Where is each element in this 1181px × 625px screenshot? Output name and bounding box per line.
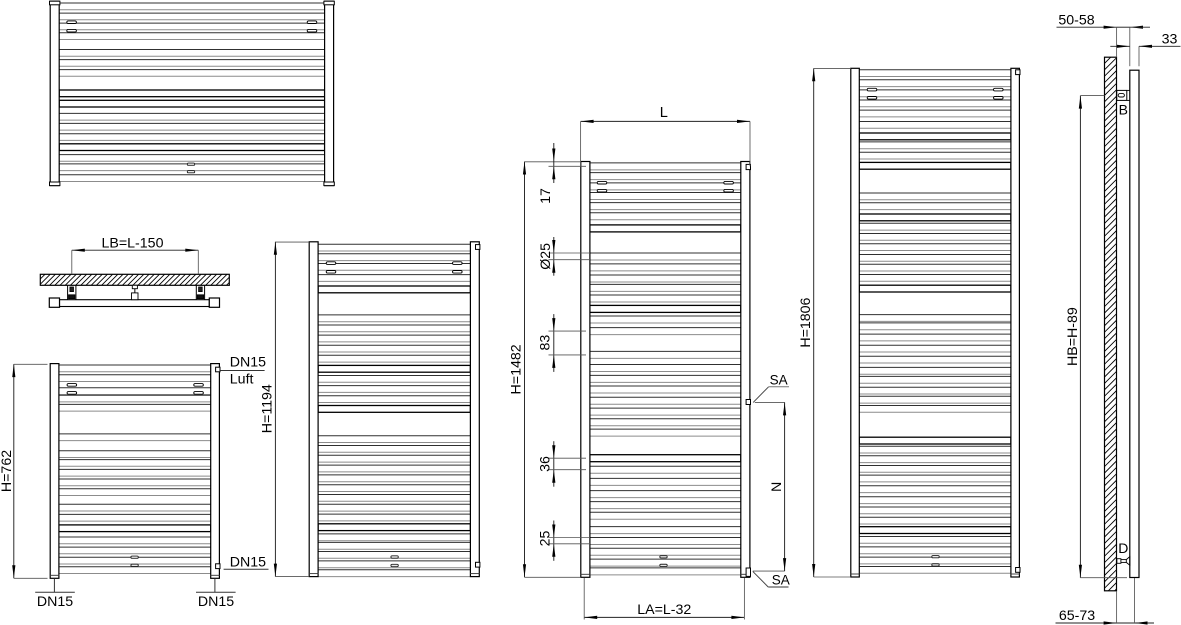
svg-text:65-73: 65-73 xyxy=(1059,608,1095,624)
svg-text:N: N xyxy=(768,482,784,492)
svg-text:H=1194: H=1194 xyxy=(260,384,276,433)
svg-text:B: B xyxy=(1119,101,1128,117)
svg-text:D: D xyxy=(1118,540,1128,556)
svg-text:LB=L-150: LB=L-150 xyxy=(102,236,164,252)
svg-text:83: 83 xyxy=(537,335,553,351)
svg-text:17: 17 xyxy=(538,188,554,204)
svg-text:H=762: H=762 xyxy=(0,450,15,492)
svg-text:H=1806: H=1806 xyxy=(798,297,814,347)
svg-text:50-58: 50-58 xyxy=(1058,13,1094,29)
svg-text:DN15: DN15 xyxy=(198,594,234,610)
svg-text:Luft: Luft xyxy=(230,372,254,388)
svg-text:DN15: DN15 xyxy=(37,594,73,610)
svg-text:L: L xyxy=(660,105,668,121)
svg-text:25: 25 xyxy=(537,531,553,547)
svg-text:36: 36 xyxy=(537,456,553,472)
svg-text:SA: SA xyxy=(772,573,790,588)
svg-text:H=1482: H=1482 xyxy=(508,344,524,394)
svg-text:HB=H-89: HB=H-89 xyxy=(1065,307,1081,366)
svg-text:Ø25: Ø25 xyxy=(538,243,554,270)
svg-text:33: 33 xyxy=(1162,32,1178,48)
svg-text:DN15: DN15 xyxy=(230,355,266,371)
svg-text:SA: SA xyxy=(770,372,788,387)
svg-text:DN15: DN15 xyxy=(230,555,266,571)
svg-text:LA=L-32: LA=L-32 xyxy=(637,602,691,618)
